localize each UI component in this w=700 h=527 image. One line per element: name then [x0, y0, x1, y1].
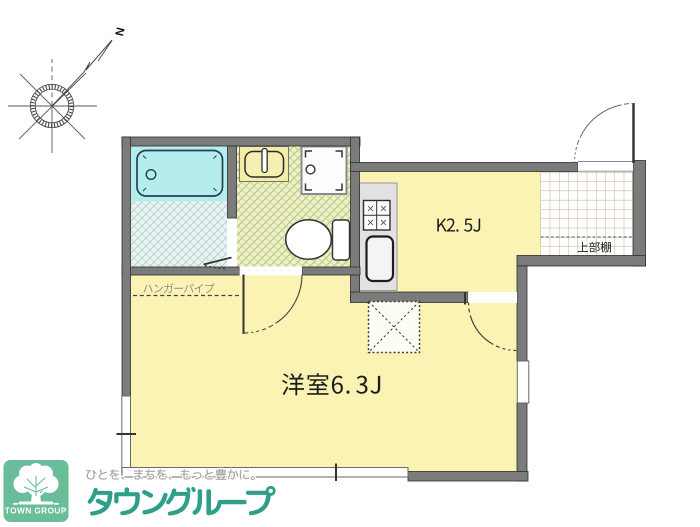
svg-text:TOWN GROUP: TOWN GROUP: [5, 506, 67, 516]
